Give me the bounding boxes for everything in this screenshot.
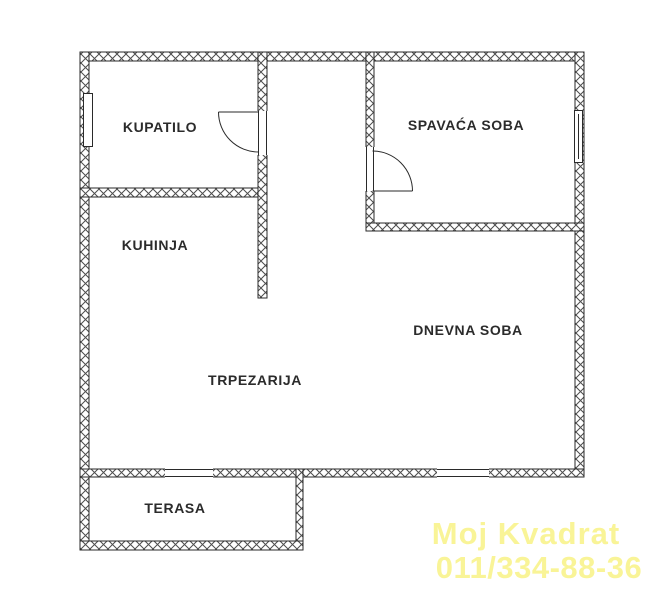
- top-exterior-wall: [80, 52, 584, 61]
- bathroom-window: [84, 94, 93, 147]
- terrace-bottom-wall: [80, 541, 303, 550]
- watermark-phone-text: 011/334-88-36: [436, 550, 642, 585]
- doors: [219, 112, 413, 191]
- wall-openings: [165, 111, 489, 478]
- bathroom-door-arc: [219, 112, 259, 152]
- bedroom-door-arc: [373, 151, 413, 191]
- room-label-dnevna-soba: DNEVNA SOBA: [413, 322, 523, 338]
- room-label-kupatilo: KUPATILO: [123, 119, 197, 135]
- bedroom-left-wall: [366, 52, 374, 231]
- floor-plan-canvas: KUPATILO SPAVAĆA SOBA KUHINJA DNEVNA SOB…: [0, 0, 655, 600]
- watermark-brand-text: Moj Kvadrat: [432, 516, 620, 551]
- bathroom-bottom-wall: [80, 188, 267, 197]
- bottom-exterior-wall: [80, 469, 584, 477]
- room-label-spavaca-soba: SPAVAĆA SOBA: [408, 116, 524, 133]
- room-label-terasa: TERASA: [144, 500, 205, 516]
- room-label-kuhinja: KUHINJA: [122, 237, 188, 253]
- terrace-right-wall: [296, 469, 303, 550]
- room-label-trpezarija: TRPEZARIJA: [208, 372, 302, 388]
- floor-plan-drawing: KUPATILO SPAVAĆA SOBA KUHINJA DNEVNA SOB…: [0, 0, 655, 600]
- bedroom-bottom-wall: [366, 223, 584, 231]
- kitchen-right-wall: [258, 52, 267, 298]
